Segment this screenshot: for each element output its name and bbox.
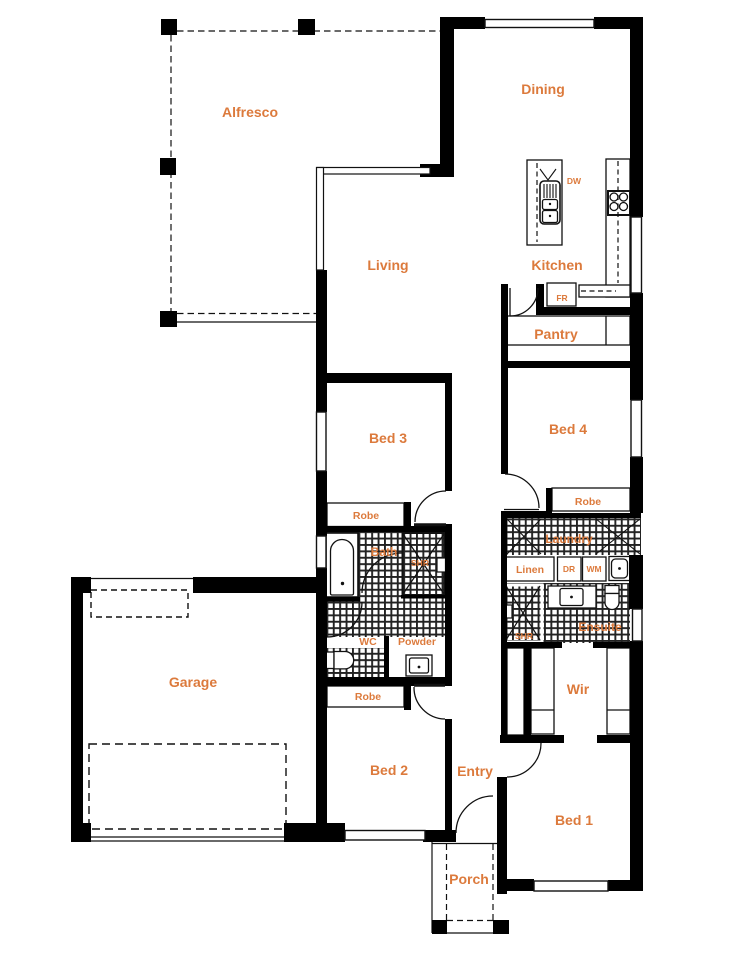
svg-text:Bed 1: Bed 1 (555, 812, 593, 828)
svg-text:Alfresco: Alfresco (222, 104, 278, 120)
svg-text:Bed 2: Bed 2 (370, 762, 408, 778)
svg-text:Laundry: Laundry (545, 532, 593, 546)
svg-text:Ensuite: Ensuite (578, 620, 622, 634)
svg-text:FR: FR (556, 293, 567, 303)
svg-text:Wir: Wir (567, 681, 590, 697)
svg-text:Robe: Robe (355, 691, 381, 703)
svg-text:Garage: Garage (169, 674, 217, 690)
svg-text:Powder: Powder (398, 636, 436, 648)
svg-text:Robe: Robe (353, 510, 379, 522)
svg-text:Bed 4: Bed 4 (549, 421, 587, 437)
svg-text:DW: DW (567, 176, 582, 186)
svg-text:WM: WM (586, 564, 601, 574)
svg-text:Robe: Robe (575, 496, 601, 508)
svg-text:Porch: Porch (449, 871, 489, 887)
svg-text:Bath: Bath (371, 545, 398, 559)
svg-text:Dining: Dining (521, 81, 565, 97)
svg-text:SHR: SHR (411, 558, 429, 568)
svg-text:Entry: Entry (457, 763, 493, 779)
svg-text:Living: Living (367, 257, 408, 273)
svg-text:DR: DR (563, 564, 575, 574)
svg-text:Bed 3: Bed 3 (369, 430, 407, 446)
svg-text:Linen: Linen (516, 564, 544, 576)
svg-text:Kitchen: Kitchen (531, 257, 582, 273)
svg-text:Pantry: Pantry (534, 326, 578, 342)
svg-text:WC: WC (359, 636, 377, 648)
svg-text:SHR: SHR (515, 631, 533, 641)
